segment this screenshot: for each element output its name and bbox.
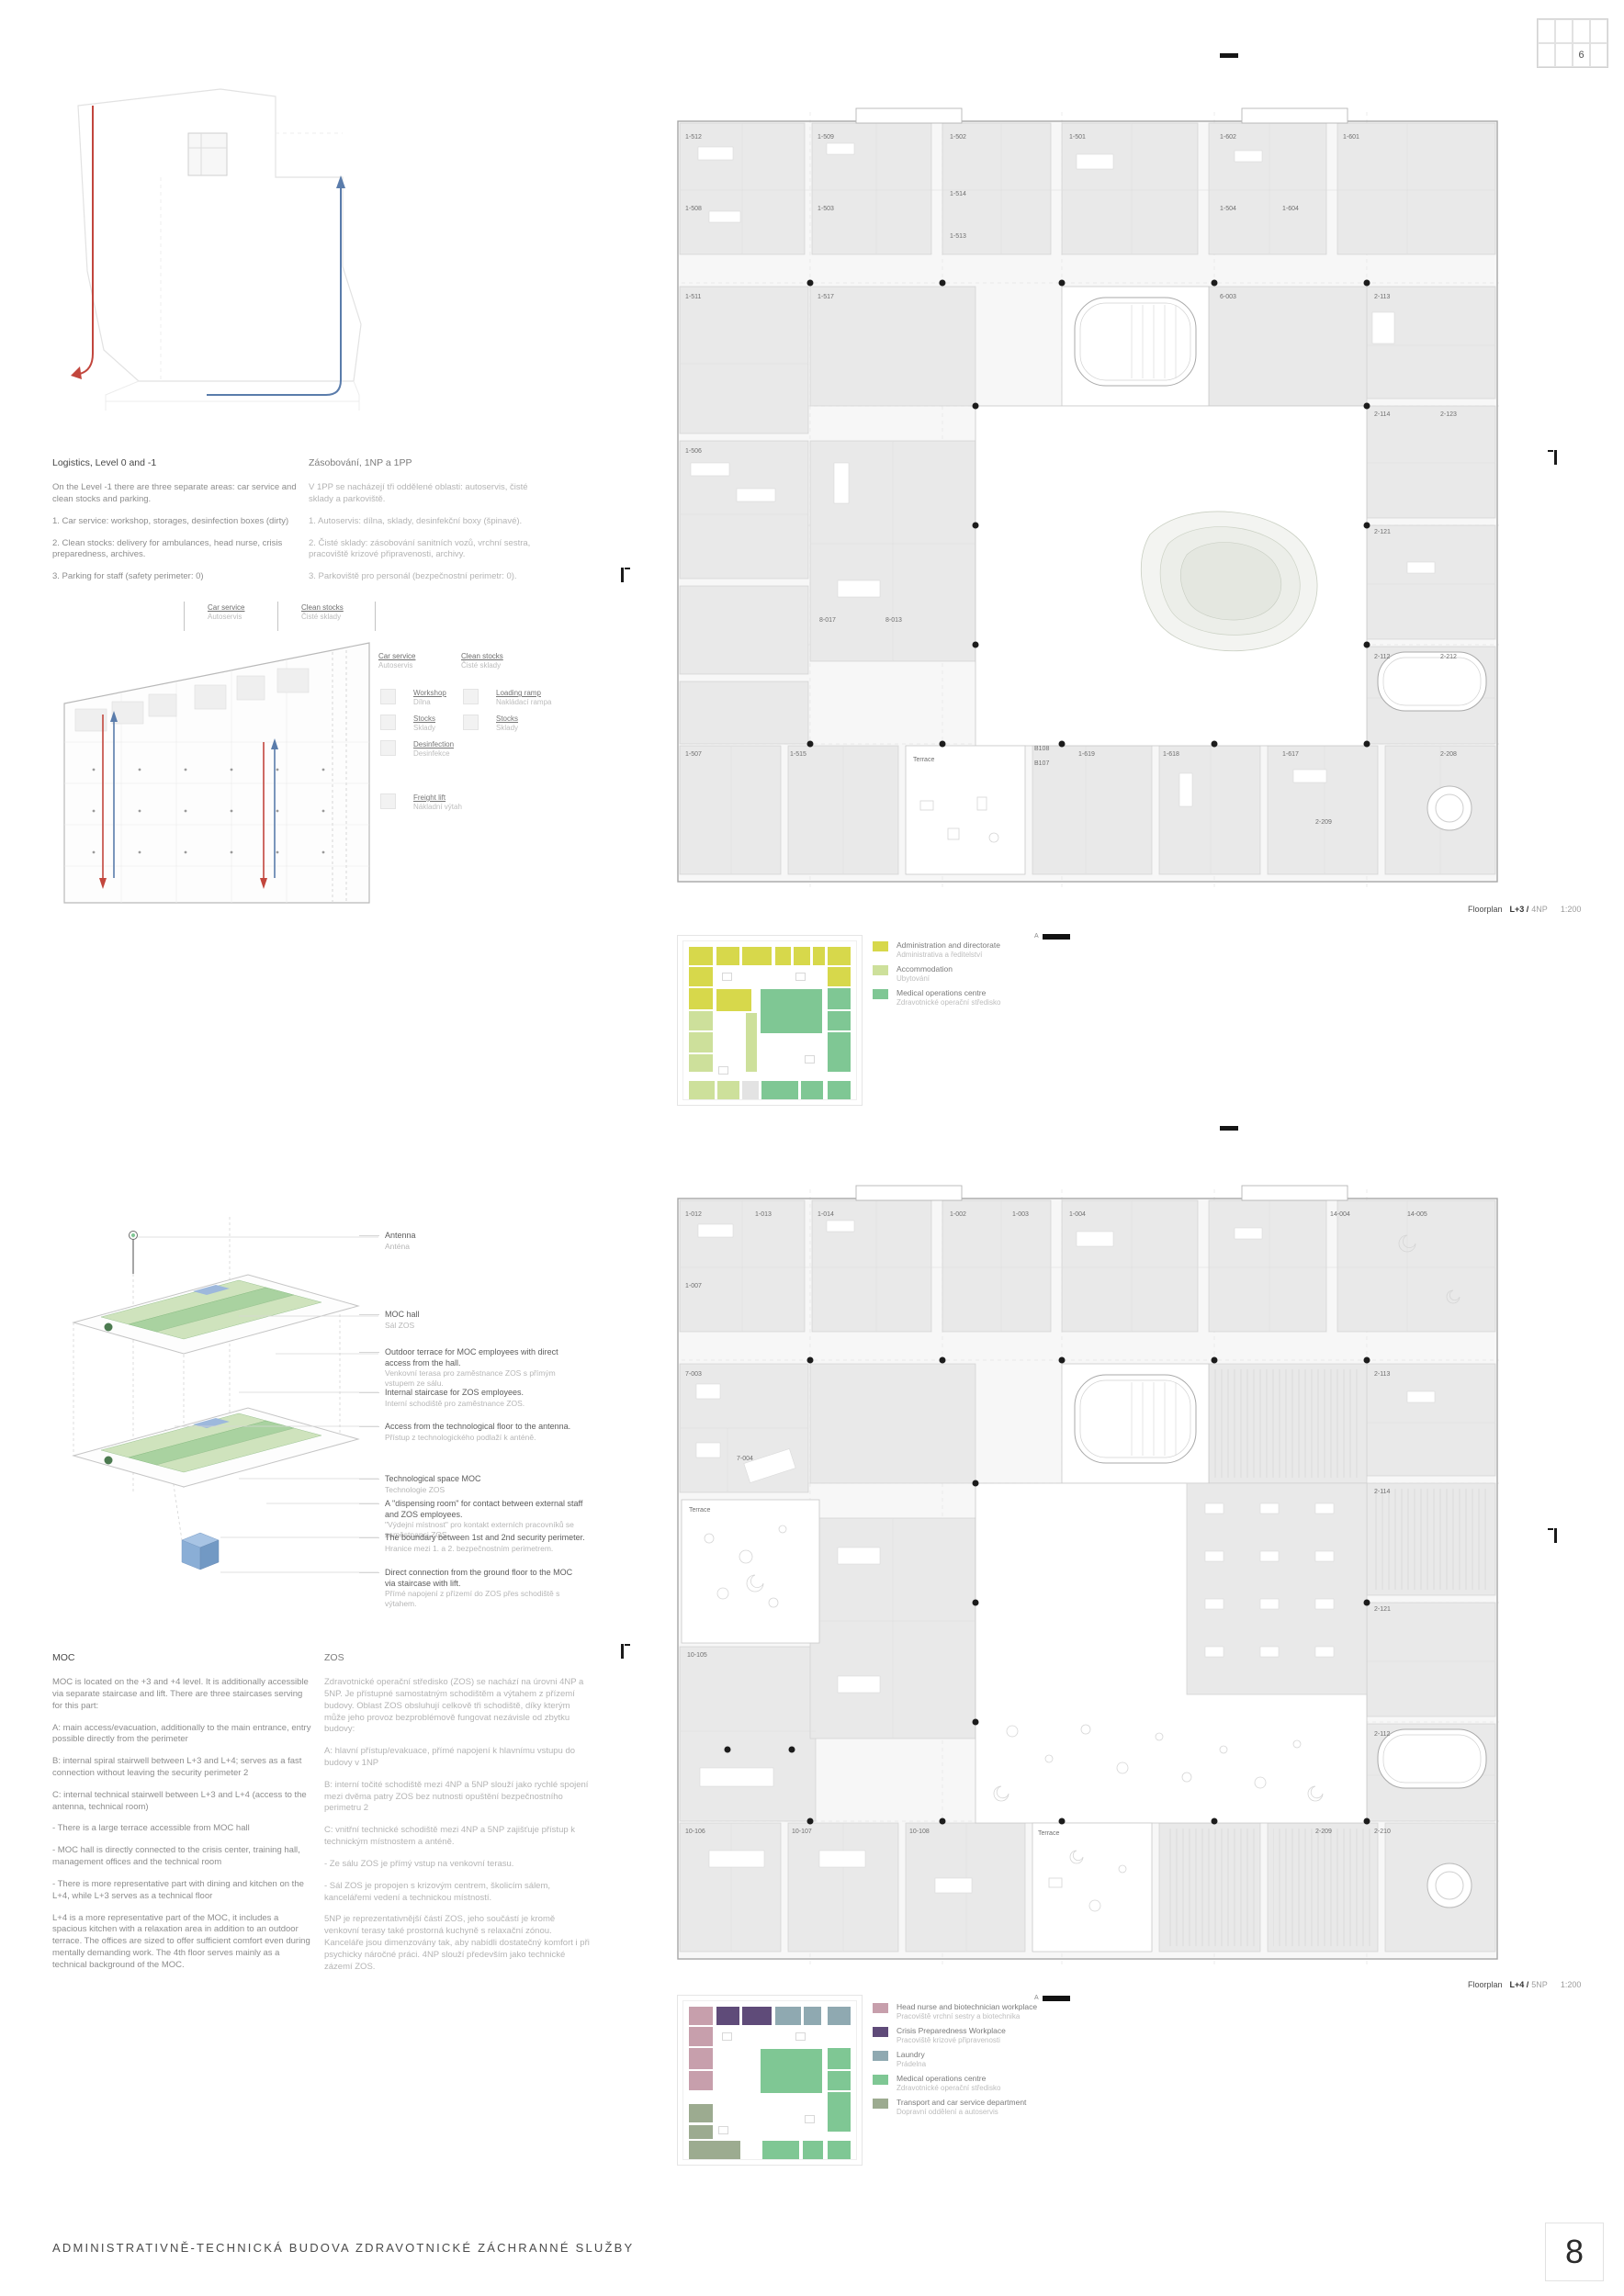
legend-header-clean-stocks: Clean stocks Čisté sklady <box>461 652 503 671</box>
paragraph: 3. Parking for staff (safety perimeter: … <box>52 571 299 583</box>
keyplan-block <box>828 1011 851 1030</box>
swatch <box>873 2051 888 2061</box>
keyplan-block <box>689 1054 713 1072</box>
room-label: 1-501 <box>1069 134 1086 141</box>
page-number-box: 8 <box>1545 2223 1604 2281</box>
keyplan-l3-legend: Administration and directorate Administr… <box>897 940 1099 1014</box>
swatch <box>380 715 396 730</box>
keyplan-block <box>775 2007 801 2025</box>
competition-panel: 6 Logistics, Level 0 and -1 On the Level… <box>0 0 1624 2296</box>
paragraph: 2. Clean stocks: delivery for ambulances… <box>52 538 299 562</box>
room-label: 1-003 <box>1012 1211 1029 1218</box>
keyplan-block <box>828 988 851 1009</box>
floorplan-l4-caption: FloorplanL+4 /5NP1:200 <box>1468 1980 1581 1989</box>
legend-item-transport: Transport and car service department Dop… <box>897 2098 1026 2117</box>
paragraph: 5NP je reprezentativnější částí ZOS, jeh… <box>324 1914 591 1973</box>
divider <box>277 602 278 631</box>
legend-item-head-nurse: Head nurse and biotechnician workplace P… <box>897 2002 1037 2021</box>
paragraph: A: main access/evacuation, additionally … <box>52 1723 312 1747</box>
scale-bar <box>1043 934 1070 940</box>
room-label: 2-113 <box>1374 1371 1390 1378</box>
room-label: 2-113 <box>1374 294 1390 300</box>
keyplan-block <box>742 947 772 965</box>
zos-title: ZOS <box>324 1651 591 1664</box>
swatch <box>380 689 396 704</box>
keyplan-block <box>716 989 751 1011</box>
axonometric-diagram <box>55 1217 386 1639</box>
legend-item-loading-ramp: Loading ramp Nakládací rampa <box>496 689 551 708</box>
paragraph: A: hlavní přístup/evakuace, přímé napoje… <box>324 1746 591 1770</box>
paragraph: 1. Car service: workshop, storages, desi… <box>52 516 299 528</box>
keyplan-block <box>828 1032 851 1072</box>
zone-header-clean-stocks: Clean stocks Čisté sklady <box>301 603 344 623</box>
room-label: 1-513 <box>950 233 966 240</box>
grid-cell <box>1573 19 1590 43</box>
floorplan-l3: 1-5121-5091-5021-5011-6021-6011-5081-503… <box>672 103 1508 900</box>
keyplan-block <box>775 947 791 965</box>
keyplan-block <box>689 947 713 965</box>
scale-marker-a: A <box>1034 933 1070 940</box>
room-label: 1-512 <box>685 134 702 141</box>
swatch <box>380 793 396 809</box>
axon-note-technological: Technological space MOC Technologie ZOS <box>385 1474 585 1495</box>
keyplan-block <box>794 947 810 965</box>
paragraph: C: internal technical stairwell between … <box>52 1790 312 1814</box>
legend-item-laundry: Laundry Prádelna <box>897 2050 926 2069</box>
room-label: 2-121 <box>1374 1606 1391 1613</box>
keyplan-block <box>689 1032 713 1052</box>
room-label: 2-114 <box>1374 411 1390 418</box>
keyplan-l4-legend: Head nurse and biotechnician workplace P… <box>897 2002 1108 2112</box>
paragraph: - Sál ZOS je propojen s krizovým centrem… <box>324 1881 591 1905</box>
basement-legend: Car service Autoservis Clean stocks Čist… <box>378 652 608 827</box>
paragraph: - There is more representative part with… <box>52 1879 312 1903</box>
keyplan-block <box>716 947 739 965</box>
keyplan-block <box>828 1081 851 1099</box>
swatch <box>873 2099 888 2109</box>
legend-item-moc: Medical operations centre Zdravotnické o… <box>897 988 1000 1007</box>
swatch <box>463 715 479 730</box>
room-label: B108 <box>1034 746 1049 752</box>
room-label: 2-112 <box>1374 1731 1390 1738</box>
room-label: 1-508 <box>685 206 702 212</box>
keyplan-furniture <box>722 973 732 981</box>
axon-note-terrace: Outdoor terrace for MOC employees with d… <box>385 1347 585 1389</box>
room-label: 1-507 <box>685 751 702 758</box>
grid-cell <box>1590 43 1607 67</box>
swatch <box>463 689 479 704</box>
keyplan-block <box>689 2027 713 2046</box>
paragraph: MOC is located on the +3 and +4 level. I… <box>52 1677 312 1712</box>
section-marker <box>621 1644 624 1659</box>
floorplan-l3-caption: FloorplanL+3 /4NP1:200 <box>1468 905 1581 914</box>
zos-text: ZOS Zdravotnické operační středisko (ZOS… <box>324 1651 591 1983</box>
keyplan-block <box>689 1081 715 1099</box>
room-label: 10-105 <box>687 1652 707 1659</box>
logistics-route-diagram <box>51 78 390 450</box>
logistics-title-en: Logistics, Level 0 and -1 <box>52 456 299 469</box>
axon-note-staircase: Internal staircase for ZOS employees. In… <box>385 1388 585 1409</box>
keyplan-block <box>716 2007 739 2025</box>
paragraph: 1. Autoservis: dílna, sklady, desinfekčn… <box>309 516 549 528</box>
keyplan-block <box>828 947 851 965</box>
room-label: 1-601 <box>1343 134 1359 141</box>
room-label: 1-012 <box>685 1211 702 1218</box>
legend-item-freight-lift: Freight lift Nákladní výtah <box>413 793 462 813</box>
footer-project-title: ADMINISTRATIVNĚ-TECHNICKÁ BUDOVA ZDRAVOT… <box>52 2241 634 2255</box>
sheet-mark-dash <box>1220 1126 1238 1131</box>
keyplan-block <box>761 989 822 1033</box>
paragraph: L+4 is a more representative part of the… <box>52 1913 312 1972</box>
room-label: 1-013 <box>755 1211 772 1218</box>
floorplan-l4: 1-0121-0131-0141-0021-0031-00414-00414-0… <box>672 1180 1508 1977</box>
logistics-title-cs: Zásobování, 1NP a 1PP <box>309 456 549 469</box>
room-label: Terrace <box>1038 1830 1059 1837</box>
room-label: 2-121 <box>1374 529 1391 535</box>
room-label: 1-604 <box>1282 206 1299 212</box>
keyplan-block <box>828 2141 851 2159</box>
paragraph: V 1PP se nacházejí tři oddělené oblasti:… <box>309 482 549 506</box>
room-label: 1-509 <box>818 134 834 141</box>
keyplan-block <box>762 2141 799 2159</box>
paragraph: 2. Čisté sklady: zásobování sanitních vo… <box>309 538 549 562</box>
room-label: 1-514 <box>950 191 966 197</box>
room-label: 2-210 <box>1374 1829 1391 1835</box>
keyplan-furniture <box>795 2032 806 2041</box>
keyplan-furniture <box>805 2115 815 2123</box>
logistics-paras-cs: V 1PP se nacházejí tři oddělené oblasti:… <box>309 482 549 583</box>
room-label: B107 <box>1034 760 1049 767</box>
room-label: 10-106 <box>685 1829 705 1835</box>
room-label: 6-003 <box>1220 294 1236 300</box>
paragraph: B: interní točité schodiště mezi 4NP a 5… <box>324 1780 591 1815</box>
paragraph: - There is a large terrace accessible fr… <box>52 1823 312 1835</box>
legend-item-stocks: Stocks Sklady <box>413 715 435 734</box>
axon-note-connection: Direct connection from the ground floor … <box>385 1568 585 1609</box>
legend-item-crisis: Crisis Preparedness Workplace Pracoviště… <box>897 2026 1006 2045</box>
keyplan-block <box>828 2092 851 2132</box>
room-label: 1-617 <box>1282 751 1299 758</box>
logistics-text-en: Logistics, Level 0 and -1 On the Level -… <box>52 456 299 593</box>
room-label: 2-209 <box>1315 819 1332 826</box>
floorplan-l3-drawing <box>672 103 1508 900</box>
legend-header-car-service: Car service Autoservis <box>378 652 415 671</box>
room-label: 2-123 <box>1440 411 1457 418</box>
keyplan-block <box>761 2049 822 2093</box>
paragraph: 3. Parkoviště pro personál (bezpečnostní… <box>309 571 549 583</box>
room-label: 2-209 <box>1315 1829 1332 1835</box>
keyplan-furniture <box>722 2032 732 2041</box>
swatch <box>873 2075 888 2085</box>
room-label: 1-004 <box>1069 1211 1086 1218</box>
axon-note-boundary: The boundary between 1st and 2nd securit… <box>385 1533 585 1554</box>
sheet-mark-dash <box>1220 53 1238 58</box>
keyplan-block <box>742 1081 759 1099</box>
room-label: 2-208 <box>1440 751 1457 758</box>
keyplan-furniture <box>718 2126 728 2134</box>
paragraph: - Ze sálu ZOS je přímý vstup na venkovní… <box>324 1859 591 1871</box>
keyplan-l3 <box>677 935 863 1106</box>
legend-item-accommodation: Accommodation Ubytování <box>897 964 953 984</box>
room-label: 1-504 <box>1220 206 1236 212</box>
paragraph: On the Level -1 there are three separate… <box>52 482 299 506</box>
room-label: 2-212 <box>1440 654 1457 660</box>
room-label: 7-004 <box>737 1456 753 1462</box>
room-label: 1-502 <box>950 134 966 141</box>
room-label: 1-506 <box>685 448 702 455</box>
keyplan-furniture <box>795 973 806 981</box>
room-label: 14-004 <box>1330 1211 1350 1218</box>
room-label: Terrace <box>913 757 934 763</box>
keyplan-block <box>801 1081 823 1099</box>
paragraph: B: internal spiral stairwell between L+3… <box>52 1756 312 1780</box>
section-marker <box>621 568 624 582</box>
moc-title: MOC <box>52 1651 312 1664</box>
room-label: 8-013 <box>885 617 902 624</box>
legend-item-stocks-2: Stocks Sklady <box>496 715 518 734</box>
zone-header-car-service: Car service Autoservis <box>208 603 244 623</box>
room-label: 1-619 <box>1078 751 1095 758</box>
keyplan-block <box>689 2007 713 2025</box>
keyplan-l4 <box>677 1995 863 2166</box>
room-label: 10-108 <box>909 1829 930 1835</box>
keyplan-block <box>742 2007 772 2025</box>
room-label: 2-114 <box>1374 1489 1390 1495</box>
grid-cell <box>1538 43 1555 67</box>
legend-item-desinfection: Desinfection Desinfekce <box>413 740 454 760</box>
floorplan-l4-drawing <box>672 1180 1508 1977</box>
keyplan-block <box>689 2104 713 2122</box>
keyplan-block <box>689 2125 713 2139</box>
grid-cell <box>1538 19 1555 43</box>
room-label: 8-017 <box>819 617 836 624</box>
keyplan-block <box>761 1081 798 1099</box>
keyplan-block <box>804 2007 821 2025</box>
zos-paras: Zdravotnické operační středisko (ZOS) se… <box>324 1677 591 1973</box>
room-label: 2-112 <box>1374 654 1390 660</box>
room-label: 1-002 <box>950 1211 966 1218</box>
room-label: 1-503 <box>818 206 834 212</box>
basement-plan <box>57 632 374 909</box>
keyplan-block <box>689 2048 713 2069</box>
axon-note-access: Access from the technological floor to t… <box>385 1422 585 1443</box>
room-label: 1-517 <box>818 294 834 300</box>
keyplan-block <box>717 1081 739 1099</box>
paragraph: C: vnitřní technické schodiště mezi 4NP … <box>324 1825 591 1849</box>
moc-text: MOC MOC is located on the +3 and +4 leve… <box>52 1651 312 1982</box>
room-label: 1-602 <box>1220 134 1236 141</box>
keyplan-block <box>803 2141 823 2159</box>
panel-index-grid: 6 <box>1537 18 1608 68</box>
room-label: 1-515 <box>790 751 806 758</box>
room-label: 1-007 <box>685 1283 702 1289</box>
room-label: 14-005 <box>1407 1211 1427 1218</box>
grid-cell <box>1590 19 1607 43</box>
keyplan-block <box>689 967 713 986</box>
swatch <box>873 2003 888 2013</box>
moc-paras: MOC is located on the +3 and +4 level. I… <box>52 1677 312 1971</box>
axon-note-moc-hall: MOC hall Sál ZOS <box>385 1310 585 1331</box>
keyplan-block <box>689 1011 713 1030</box>
swatch <box>873 989 888 999</box>
room-label: 1-511 <box>685 294 701 300</box>
keyplan-block <box>689 988 713 1009</box>
divider <box>375 602 376 631</box>
grid-cell <box>1555 43 1573 67</box>
section-marker <box>1554 1528 1557 1543</box>
room-label: Terrace <box>689 1507 710 1514</box>
grid-cell <box>1555 19 1573 43</box>
paragraph: - MOC hall is directly connected to the … <box>52 1845 312 1869</box>
swatch <box>873 941 888 951</box>
scale-bar <box>1043 1996 1070 2001</box>
divider <box>184 602 185 631</box>
logistics-text-cs: Zásobování, 1NP a 1PP V 1PP se nacházejí… <box>309 456 549 593</box>
legend-item-administration: Administration and directorate Administr… <box>897 940 1000 960</box>
keyplan-block <box>746 1013 757 1072</box>
keyplan-block <box>813 947 825 965</box>
axon-note-antenna: Antenna Anténa <box>385 1231 585 1252</box>
room-label: 7-003 <box>685 1371 702 1378</box>
keyplan-furniture <box>805 1055 815 1064</box>
scale-marker-a: A <box>1034 1995 1070 2001</box>
keyplan-block <box>828 967 851 986</box>
swatch <box>380 740 396 756</box>
keyplan-block <box>828 2071 851 2090</box>
keyplan-block <box>828 2007 851 2025</box>
paragraph: Zdravotnické operační středisko (ZOS) se… <box>324 1677 591 1736</box>
keyplan-block <box>689 2141 740 2159</box>
keyplan-block <box>689 2071 713 2090</box>
panel-number-cell: 6 <box>1573 43 1590 67</box>
room-label: 1-618 <box>1163 751 1179 758</box>
swatch <box>873 2027 888 2037</box>
room-label: 10-107 <box>792 1829 812 1835</box>
keyplan-furniture <box>718 1066 728 1075</box>
keyplan-block <box>828 2048 851 2069</box>
legend-item-moc: Medical operations centre Zdravotnické o… <box>897 2074 1000 2093</box>
room-label: 1-014 <box>818 1211 834 1218</box>
logistics-paras-en: On the Level -1 there are three separate… <box>52 482 299 583</box>
legend-item-workshop: Workshop Dílna <box>413 689 446 708</box>
section-marker <box>1554 450 1557 465</box>
swatch <box>873 965 888 975</box>
